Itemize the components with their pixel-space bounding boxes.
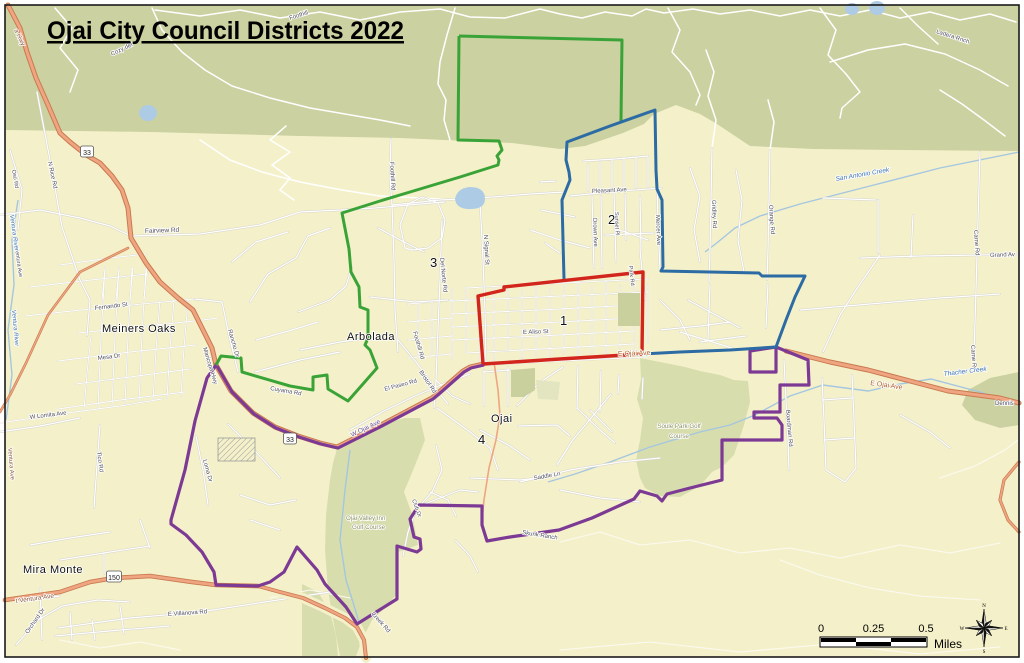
svg-text:Grand Av: Grand Av xyxy=(990,252,1015,259)
svg-text:Ojai: Ojai xyxy=(491,413,513,425)
svg-text:Drown Ave: Drown Ave xyxy=(591,218,598,248)
svg-text:Mira Monte: Mira Monte xyxy=(23,564,83,576)
svg-text:Meiners Oaks: Meiners Oaks xyxy=(102,323,176,335)
svg-text:Mercer Ave: Mercer Ave xyxy=(654,215,661,246)
svg-text:Course: Course xyxy=(669,433,690,440)
svg-text:0: 0 xyxy=(818,623,824,635)
svg-text:3: 3 xyxy=(430,255,437,270)
svg-text:E Aliso St: E Aliso St xyxy=(523,329,549,336)
svg-text:Arbolada: Arbolada xyxy=(347,331,395,343)
svg-text:33: 33 xyxy=(83,150,91,157)
svg-text:E Ojai Ave: E Ojai Ave xyxy=(618,350,651,358)
svg-text:Soule Park Golf: Soule Park Golf xyxy=(657,423,701,430)
svg-text:Ojai Valley Inn: Ojai Valley Inn xyxy=(346,515,386,522)
svg-text:0.25: 0.25 xyxy=(863,623,884,635)
svg-text:W: W xyxy=(960,627,965,632)
svg-text:Dennis: Dennis xyxy=(995,401,1014,407)
svg-text:4: 4 xyxy=(478,432,485,447)
svg-text:1: 1 xyxy=(560,313,567,328)
svg-text:150: 150 xyxy=(108,575,120,582)
svg-text:Ojai City Council Districts 20: Ojai City Council Districts 2022 xyxy=(47,17,404,45)
svg-text:33: 33 xyxy=(286,437,294,444)
svg-text:Golf Course: Golf Course xyxy=(352,524,386,531)
svg-text:Fairview Rd: Fairview Rd xyxy=(145,227,180,235)
svg-text:S: S xyxy=(983,650,986,655)
svg-text:E: E xyxy=(1004,627,1007,632)
svg-text:N: N xyxy=(982,604,986,609)
svg-text:Gridley Rd: Gridley Rd xyxy=(710,200,717,229)
svg-text:0.5: 0.5 xyxy=(918,623,933,635)
svg-text:Sunset Pl: Sunset Pl xyxy=(613,212,620,236)
svg-text:Miles: Miles xyxy=(934,637,962,651)
